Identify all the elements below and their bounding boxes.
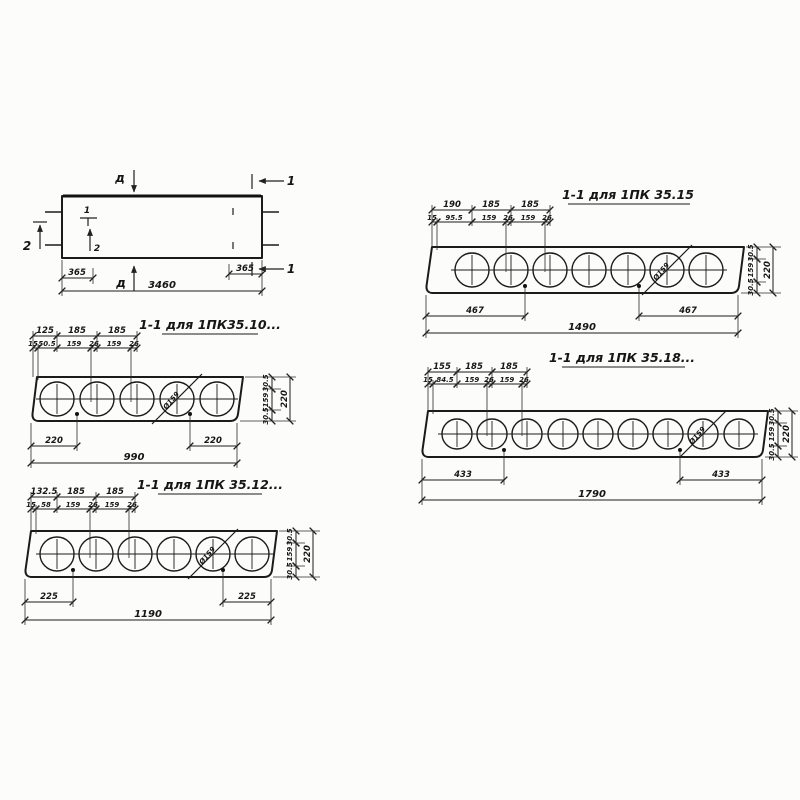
top-dim: 185 [465, 362, 483, 372]
top-dim: 185 [68, 326, 86, 336]
sub-dim: 26 [484, 376, 494, 384]
overall-width: 1790 [578, 489, 606, 500]
sub-dim: 26 [519, 376, 529, 384]
hollow-cores: Ø159 [451, 245, 727, 295]
sub-dim: 15 [423, 376, 433, 384]
sub-dim: 159 [482, 214, 497, 222]
sub-dim: 26 [129, 340, 139, 348]
plan-offset-left: 365 [68, 268, 86, 278]
section-title: 1-1 для 1ПК 35.12... [137, 477, 283, 492]
sub-dim: 159 [66, 501, 81, 509]
top-dim: 185 [67, 487, 85, 497]
side-dim: 30.5 [747, 244, 755, 261]
section-1pk35-12: 1-1 для 1ПК 35.12... Ø159 [25, 477, 320, 625]
side-dim: 159 [768, 427, 776, 442]
core-diameter-label: Ø159 [651, 261, 671, 283]
plan-view: д д 1 1 2 1 2 [23, 170, 295, 296]
top-dim: 132.5 [31, 487, 58, 497]
side-dim: 30.5 [768, 443, 776, 460]
section-title: 1-1 для 1ПК35.10... [139, 317, 281, 332]
bottom-dim: 433 [453, 470, 472, 480]
hollow-cores: Ø159 [36, 529, 273, 579]
hollow-cores: Ø159 [438, 411, 758, 457]
bottom-dim: 220 [45, 436, 63, 446]
cut-2-marker: 2 [23, 222, 47, 253]
section-1pk35-18: 1-1 для 1ПК 35.18... Ø159 [422, 350, 798, 505]
side-dim: 30.5 [286, 528, 294, 545]
section-title: 1-1 для 1ПК 35.15 [562, 187, 694, 202]
overall-width: 1490 [568, 322, 596, 333]
sub-dim: 15 [28, 340, 38, 348]
plan-overall-length: 3460 [148, 280, 176, 291]
core-diameter-label: Ø159 [197, 545, 217, 567]
section-title: 1-1 для 1ПК 35.18... [549, 350, 695, 365]
sub-dim: 26 [89, 340, 99, 348]
sub-dim: 84.5 [436, 376, 453, 384]
sub-dim: 95.5 [445, 214, 462, 222]
side-dim: 159 [286, 547, 294, 562]
section-1pk35-15: 1-1 для 1ПК 35.15 Ø159 [426, 187, 781, 338]
sub-dim: 159 [67, 340, 82, 348]
technical-drawing: д д 1 1 2 1 2 [0, 0, 800, 800]
sub-dim: 159 [107, 340, 122, 348]
side-dim: 159 [747, 263, 755, 278]
top-dim: 185 [106, 487, 124, 497]
hollow-cores: Ø159 [36, 374, 238, 424]
top-dim: 125 [36, 326, 54, 336]
top-dim: 155 [433, 362, 451, 372]
thickness-dim: 220 [303, 545, 313, 563]
top-dim: 185 [108, 326, 126, 336]
sub-dim: 50.5 [38, 340, 55, 348]
dimension-lines [25, 497, 313, 620]
sub-dim: 26 [127, 501, 137, 509]
core-diameter-label: Ø159 [161, 390, 181, 412]
thickness-dim: 220 [763, 261, 773, 279]
extension-lines [426, 205, 781, 338]
side-dim: 30.5 [768, 408, 776, 425]
plan-offset-right: 365 [236, 264, 254, 274]
top-dim: 190 [443, 200, 461, 210]
thickness-dim: 220 [280, 390, 290, 408]
sub-dim: 26 [503, 214, 513, 222]
bottom-dim: 433 [711, 470, 730, 480]
top-dim: 185 [500, 362, 518, 372]
sub-dim: 159 [521, 214, 536, 222]
sub-dim: 159 [500, 376, 515, 384]
sub-dim: 15 [26, 501, 36, 509]
cut-1-bottom-label: 1 [287, 262, 295, 276]
thickness-dim: 220 [782, 425, 792, 443]
bottom-dim: 220 [204, 436, 222, 446]
section-marker-top-label: д [114, 171, 125, 185]
side-dim: 159 [262, 393, 270, 408]
section-marker-bottom: д [115, 266, 134, 291]
cut-2-label: 2 [23, 239, 31, 253]
section-marker-bottom-label: д [115, 276, 126, 290]
cut-1-top-label: 1 [287, 174, 295, 188]
item-2-label: 2 [94, 244, 100, 254]
bottom-dim: 225 [40, 592, 58, 602]
blueprint-page: д д 1 1 2 1 2 [0, 0, 800, 800]
top-dim: 185 [521, 200, 539, 210]
section-1pk35-10: 1-1 для 1ПК35.10... Ø159 [28, 317, 296, 468]
sub-dim: 58 [41, 501, 51, 509]
extension-lines [25, 492, 320, 625]
side-dim: 30.5 [262, 407, 270, 424]
sub-dim: 26 [88, 501, 98, 509]
section-marker-top: д [114, 170, 134, 192]
extension-lines [31, 331, 296, 468]
sub-dim: 15 [427, 214, 437, 222]
item-marks: 1 2 [80, 206, 233, 254]
bottom-dim: 467 [465, 306, 484, 316]
top-dim: 185 [482, 200, 500, 210]
extension-lines [422, 367, 798, 505]
side-dim: 30.5 [286, 562, 294, 579]
side-dim: 30.5 [262, 374, 270, 391]
sub-dim: 159 [105, 501, 120, 509]
sub-dim: 26 [542, 214, 552, 222]
edge-stubs [45, 212, 279, 245]
bottom-dim: 467 [678, 306, 697, 316]
overall-width: 1190 [134, 609, 162, 620]
bottom-dim: 225 [238, 592, 256, 602]
side-dim: 30.5 [747, 278, 755, 295]
overall-width: 990 [124, 452, 145, 463]
item-1-label: 1 [84, 206, 90, 216]
core-diameter-label: Ø159 [687, 425, 707, 447]
cut-1-top: 1 [252, 174, 295, 189]
sub-dim: 159 [465, 376, 480, 384]
